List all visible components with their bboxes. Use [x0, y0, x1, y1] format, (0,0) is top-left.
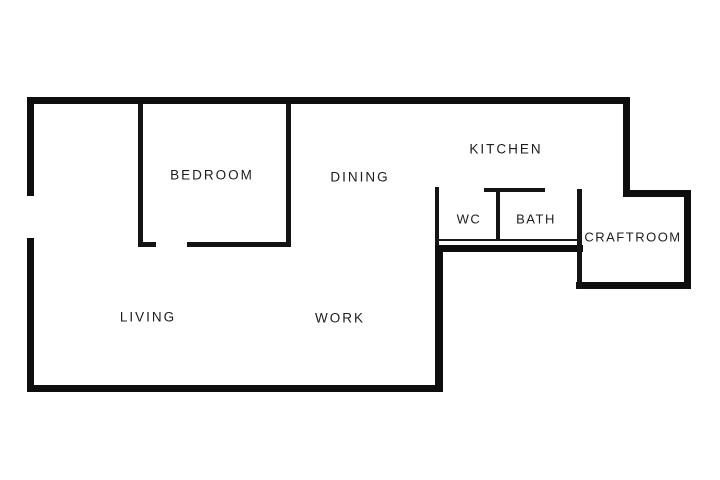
wall-bedroom-left — [138, 104, 143, 245]
room-label-kitchen: KITCHEN — [469, 142, 542, 157]
wall-outer-right-upper — [623, 97, 630, 197]
wall-craftroom-right — [684, 190, 691, 289]
wall-outer-top — [27, 97, 630, 104]
room-label-living: LIVING — [120, 310, 176, 325]
room-label-work: WORK — [315, 311, 365, 326]
wall-outer-left-lower — [27, 238, 34, 392]
wall-work-right — [435, 245, 443, 392]
wall-bedroom-bottom-stub — [138, 242, 156, 247]
wall-outer-left-upper — [27, 97, 34, 196]
floor-plan: BEDROOM DINING KITCHEN WC BATH CRAFTROOM… — [0, 0, 720, 480]
wall-bath-bottom-thick — [435, 245, 583, 252]
wall-step-horizontal — [623, 190, 691, 197]
wall-wc-left — [435, 187, 439, 245]
wall-wcbath-bottom-line — [437, 239, 581, 241]
room-label-bath: BATH — [516, 212, 556, 227]
wall-wcbath-top — [484, 188, 545, 192]
wall-bedroom-bottom — [187, 242, 291, 247]
wall-bedroom-right — [286, 104, 291, 245]
room-label-bedroom: BEDROOM — [170, 168, 254, 183]
wall-craftroom-bottom — [576, 282, 691, 289]
room-label-craftroom: CRAFTROOM — [584, 230, 681, 245]
room-label-dining: DINING — [330, 170, 389, 185]
wall-outer-bottom — [27, 385, 443, 392]
room-label-wc: WC — [457, 212, 482, 227]
wall-wcbath-separator — [496, 188, 500, 241]
